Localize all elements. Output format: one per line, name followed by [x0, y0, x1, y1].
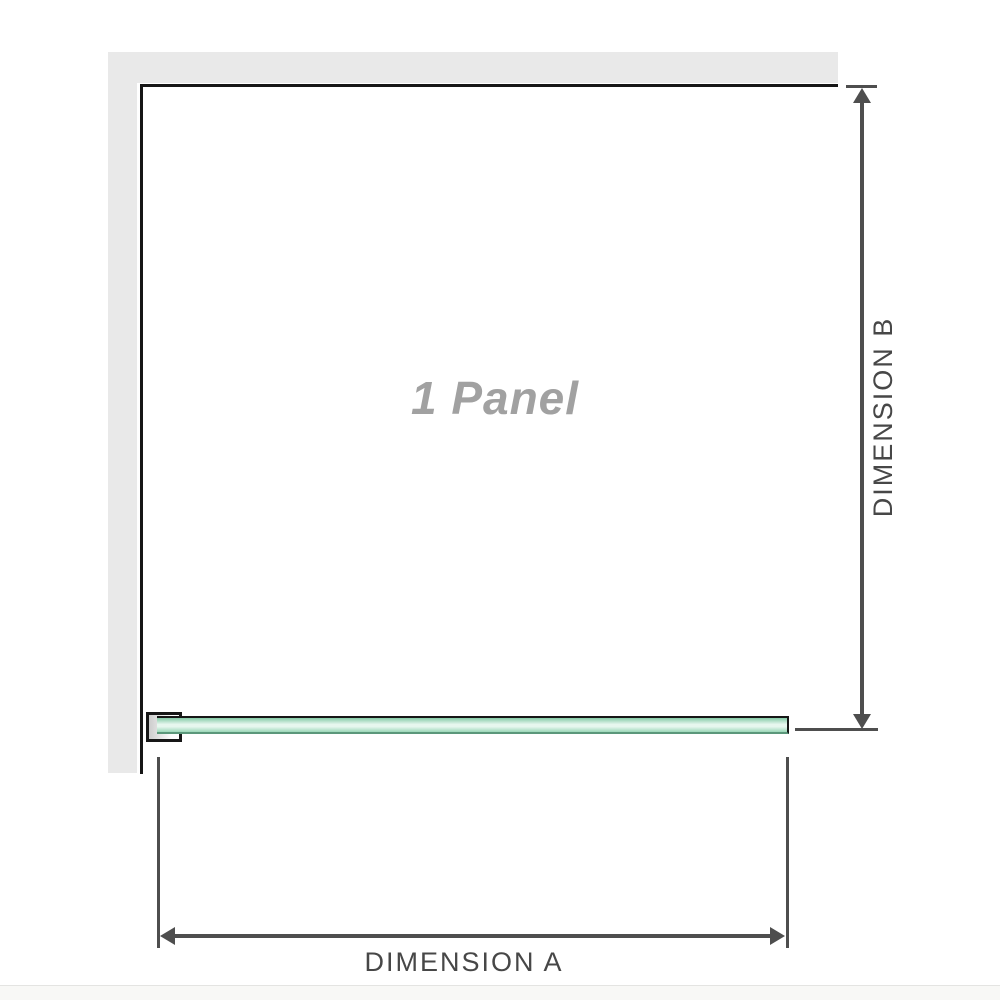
dimension-a-label: DIMENSION A: [264, 946, 664, 978]
dimension-b-line: [860, 98, 864, 718]
dimension-b-arrow-down-icon: [853, 714, 871, 729]
panel-count-label: 1 Panel: [295, 370, 695, 426]
dimension-b-label: DIMENSION B: [868, 267, 898, 567]
dimension-b-tick-top: [846, 85, 877, 88]
dimension-a-arrow-left-icon: [160, 927, 175, 945]
glass-panel: [157, 716, 789, 734]
bottom-edge-strip: [0, 985, 1000, 1000]
wall-inner-edge-top: [140, 84, 838, 87]
wall-left-bar: [108, 52, 137, 773]
wall-top-bar: [108, 52, 838, 83]
dimension-a-arrow-right-icon: [770, 927, 785, 945]
dimension-a-line: [172, 934, 772, 938]
dimension-a-extension-right: [786, 757, 789, 948]
dimension-a-extension-left: [157, 757, 160, 948]
dimension-b-tick-bottom: [795, 728, 878, 731]
wall-inner-edge-left: [140, 84, 143, 774]
panel-dimension-diagram: 1 Panel DIMENSION B DIMENSION A: [0, 0, 1000, 1000]
dimension-b-arrow-up-icon: [853, 88, 871, 103]
